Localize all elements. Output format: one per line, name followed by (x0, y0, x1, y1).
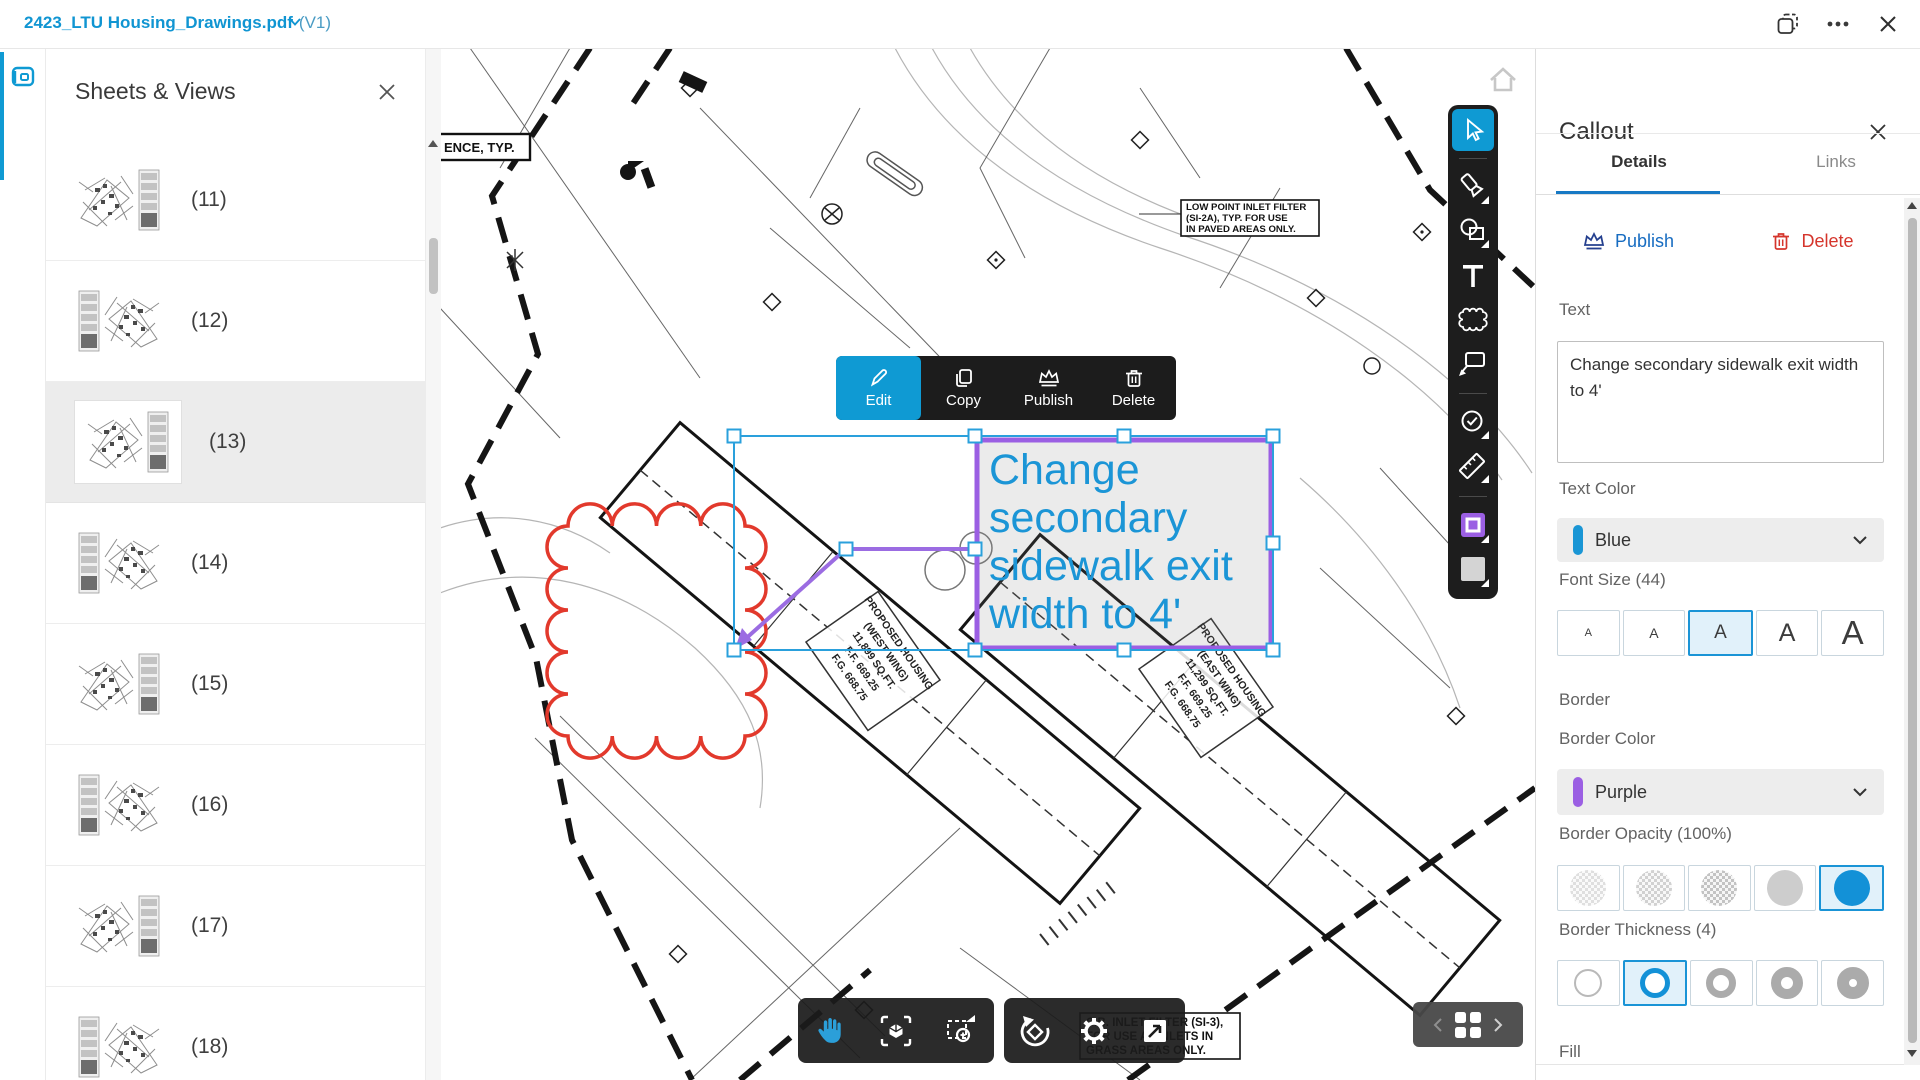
scroll-up-icon[interactable] (428, 140, 438, 147)
text-color-dropdown[interactable]: Blue (1557, 518, 1884, 562)
sheet-thumbnail (75, 401, 181, 483)
sheet-thumbnail (75, 773, 163, 837)
callout-text-input[interactable]: Change secondary sidewalk exit width to … (1557, 341, 1884, 463)
opacity-100-icon (1834, 870, 1870, 906)
crown-icon (1582, 230, 1606, 252)
border-color-value: Purple (1595, 782, 1852, 803)
version-chevron-down-icon[interactable] (288, 17, 302, 27)
opacity-option-4[interactable] (1754, 865, 1817, 911)
panel-delete-button[interactable]: Delete (1720, 226, 1904, 256)
zoom-window-button[interactable] (943, 1013, 979, 1049)
svg-text:IN PAVED AREAS ONLY.: IN PAVED AREAS ONLY. (1186, 224, 1296, 235)
navigation-toolbar (798, 998, 994, 1063)
opacity-75-icon (1701, 870, 1737, 906)
opacity-option-3[interactable] (1688, 865, 1751, 911)
font-size-option-1[interactable]: A (1557, 610, 1620, 656)
sheet-row-11[interactable]: (11) (45, 140, 425, 261)
marker-icon (1455, 170, 1491, 206)
sheet-navigator-button[interactable] (1413, 1002, 1523, 1047)
opacity-25-icon (1570, 870, 1606, 906)
shapes-tool-button[interactable] (1455, 214, 1491, 250)
sheet-label: (16) (191, 793, 228, 817)
panel-close-icon[interactable] (1868, 122, 1888, 142)
callout-icon (1455, 346, 1491, 382)
select-tool-button[interactable] (1452, 109, 1494, 151)
purple-swatch (1573, 777, 1583, 807)
sheets-panel-title: Sheets & Views (75, 78, 236, 105)
sheets-panel-icon[interactable] (10, 64, 36, 90)
viewer-settings-toolbar (1004, 998, 1185, 1063)
chevron-down-icon (1852, 535, 1868, 545)
revision-cloud-icon (1455, 302, 1491, 338)
font-size-option-4[interactable]: A (1756, 610, 1819, 656)
sheet-thumbnail (75, 652, 163, 716)
font-size-label: Font Size (44) (1559, 570, 1666, 590)
left-rail (0, 48, 46, 1080)
toolbar-divider (1459, 158, 1487, 159)
zoom-window-icon (943, 1013, 979, 1049)
sheet-row-13-selected[interactable]: (13) (45, 382, 425, 503)
sheet-label: (15) (191, 672, 228, 696)
border-color-dropdown[interactable]: Purple (1557, 769, 1884, 815)
panel-scrollbar-thumb[interactable] (1908, 218, 1917, 1043)
border-section-label: Border (1559, 690, 1610, 710)
text-color-label: Text Color (1559, 479, 1636, 499)
toolbar-divider (1459, 496, 1487, 497)
border-color-label: Border Color (1559, 729, 1655, 749)
crown-icon (1037, 367, 1061, 389)
annotation-context-toolbar: Edit Copy Publish (836, 356, 1176, 420)
drawing-canvas[interactable]: PROPOSED HOUSING (WEST WING) 11,899 SQ.F… (440, 48, 1535, 1080)
copy-label: Copy (946, 392, 981, 409)
font-size-option-3-selected[interactable]: A (1688, 610, 1753, 656)
opacity-option-2[interactable] (1623, 865, 1686, 911)
divider (1536, 1064, 1904, 1065)
svg-text:ENCE, TYP.: ENCE, TYP. (444, 140, 515, 155)
status-tool-button[interactable] (1455, 405, 1491, 441)
thickness-option-3[interactable] (1690, 960, 1753, 1006)
home-view-icon[interactable] (1486, 64, 1520, 96)
hand-pan-icon (814, 1014, 848, 1048)
trash-icon (1123, 367, 1145, 389)
font-size-option-2[interactable]: A (1623, 610, 1686, 656)
sheet-grid-icon (1453, 1010, 1483, 1040)
sheet-row-14[interactable]: (14) (45, 503, 425, 624)
sheet-thumbnail (75, 531, 163, 595)
callout-text-box[interactable] (977, 440, 1271, 648)
opacity-option-1[interactable] (1557, 865, 1620, 911)
blue-swatch (1573, 525, 1583, 555)
thickness-option-4[interactable] (1756, 960, 1819, 1006)
sheet-row-15[interactable]: (15) (45, 624, 425, 745)
publish-button[interactable]: Publish (1006, 356, 1091, 420)
panel-publish-label: Publish (1615, 231, 1674, 252)
text-icon (1455, 258, 1491, 294)
svg-text:LOW POINT INLET FILTER: LOW POINT INLET FILTER (1186, 202, 1306, 213)
document-title-text: 2423_LTU Housing_Drawings.pdf (24, 13, 293, 32)
sheets-panel: Sheets & Views (45, 48, 425, 1080)
site-plan-drawing: PROPOSED HOUSING (WEST WING) 11,899 SQ.F… (440, 48, 1535, 1080)
panel-actions: Publish Delete (1536, 226, 1904, 256)
sheet-row-18[interactable]: (18) (45, 987, 425, 1080)
top-bar: 2423_LTU Housing_Drawings.pdf(V1) (0, 0, 1920, 49)
document-version: (V1) (299, 13, 331, 32)
sheets-scrollbar-thumb[interactable] (429, 238, 438, 294)
text-color-value: Blue (1595, 530, 1852, 551)
delete-label: Delete (1112, 392, 1155, 409)
rotate-reset-icon (1016, 1013, 1052, 1049)
trash-icon (1770, 230, 1792, 252)
pencil-icon (868, 367, 890, 389)
sheet-thumbnail (75, 894, 163, 958)
svg-text:(SI-2A), TYP. FOR USE: (SI-2A), TYP. FOR USE (1186, 213, 1288, 224)
border-opacity-options (1557, 865, 1884, 911)
sheet-label: (11) (191, 188, 227, 212)
app-window: 2423_LTU Housing_Drawings.pdf(V1) (0, 0, 1920, 1080)
panel-publish-button[interactable]: Publish (1536, 226, 1720, 256)
document-title[interactable]: 2423_LTU Housing_Drawings.pdf(V1) (24, 13, 331, 33)
more-menu-icon[interactable] (1824, 10, 1852, 38)
sheet-row-12[interactable]: (12) (45, 261, 425, 382)
chevron-down-icon (1852, 787, 1868, 797)
sheets-panel-close-icon[interactable] (377, 82, 397, 102)
edit-label: Edit (866, 392, 892, 409)
panel-delete-label: Delete (1801, 231, 1853, 252)
low-point-inlet-note: LOW POINT INLET FILTER (SI-2A), TYP. FOR… (1139, 200, 1319, 236)
toolbar-divider (1459, 393, 1487, 394)
opacity-50-icon (1636, 870, 1672, 906)
sheet-thumbnail (75, 168, 163, 232)
check-circle-icon (1455, 405, 1491, 441)
expand-icon (1137, 1013, 1173, 1049)
next-sheet-icon[interactable] (1493, 1017, 1503, 1033)
gear-icon (1076, 1013, 1112, 1049)
delete-button[interactable]: Delete (1091, 356, 1176, 420)
west-wing-label: PROPOSED HOUSING (WEST WING) 11,899 SQ.F… (805, 590, 941, 732)
sheet-list: (11) (12) (13) (14) (15) (16) (45, 140, 425, 1080)
sheet-label: (12) (191, 309, 228, 333)
thickness-1-icon (1574, 969, 1602, 997)
ruler-icon (1455, 449, 1491, 485)
edit-button[interactable]: Edit (836, 356, 921, 420)
opacity-90-icon (1767, 870, 1803, 906)
thickness-12-icon (1771, 967, 1803, 999)
border-thickness-label: Border Thickness (4) (1559, 920, 1716, 940)
copy-icon (953, 367, 975, 389)
shapes-icon (1455, 214, 1491, 250)
sheet-label: (14) (191, 551, 228, 575)
sheet-row-17[interactable]: (17) (45, 866, 425, 987)
prev-sheet-icon[interactable] (1433, 1017, 1443, 1033)
sheet-thumbnail (75, 289, 163, 353)
cursor-icon (1460, 117, 1486, 143)
callout-annotation[interactable] (734, 436, 1273, 650)
fullscreen-button[interactable] (1137, 1013, 1173, 1049)
fill-color-swatch-icon (1455, 552, 1491, 588)
scroll-down-icon[interactable] (1907, 1050, 1917, 1057)
compare-icon[interactable] (1774, 10, 1802, 38)
callout-properties-panel: Callout Details Links Publish (1535, 48, 1920, 1080)
scroll-up-icon[interactable] (1907, 202, 1917, 209)
sheet-label: (18) (191, 1035, 228, 1059)
fit-view-icon (878, 1013, 914, 1049)
divider (1536, 194, 1920, 195)
fill-section-label: Fill (1559, 1042, 1581, 1062)
reset-orientation-button[interactable] (1016, 1013, 1052, 1049)
panel-scrollbar[interactable] (1904, 198, 1920, 1065)
callout-tool-button[interactable] (1455, 346, 1491, 382)
thickness-option-2-selected[interactable] (1623, 960, 1688, 1006)
close-window-icon[interactable] (1874, 10, 1902, 38)
border-thickness-options (1557, 960, 1884, 1006)
border-opacity-label: Border Opacity (100%) (1559, 824, 1732, 844)
sheet-label: (17) (191, 914, 228, 938)
thickness-4-icon (1640, 968, 1670, 998)
publish-label: Publish (1024, 392, 1073, 409)
sheets-scrollbar[interactable] (425, 48, 441, 1080)
thickness-option-1[interactable] (1557, 960, 1620, 1006)
opacity-option-5-selected[interactable] (1819, 865, 1884, 911)
text-field-label: Text (1559, 300, 1590, 320)
text-tool-button[interactable] (1455, 258, 1491, 294)
thickness-8-icon (1706, 968, 1736, 998)
divider (1536, 133, 1920, 134)
copy-button[interactable]: Copy (921, 356, 1006, 420)
tab-details[interactable]: Details (1594, 152, 1684, 172)
fence-note: ENCE, TYP. (440, 134, 530, 160)
sheet-label: (13) (209, 430, 246, 454)
settings-button[interactable] (1076, 1013, 1112, 1049)
sheet-row-16[interactable]: (16) (45, 745, 425, 866)
fit-view-button[interactable] (878, 1013, 914, 1049)
fill-color-swatch-button[interactable] (1455, 552, 1491, 588)
border-color-swatch-icon (1455, 508, 1491, 544)
measure-tool-button[interactable] (1455, 449, 1491, 485)
cloud-tool-button[interactable] (1455, 302, 1491, 338)
active-panel-accent (0, 52, 4, 180)
font-size-option-5[interactable]: A (1821, 610, 1884, 656)
draw-tool-button[interactable] (1455, 170, 1491, 206)
thickness-option-5[interactable] (1821, 960, 1884, 1006)
border-color-swatch-button[interactable] (1455, 508, 1491, 544)
sheet-thumbnail (75, 1015, 163, 1079)
thickness-16-icon (1837, 967, 1869, 999)
tab-links[interactable]: Links (1791, 152, 1881, 172)
pan-tool-button[interactable] (813, 1013, 849, 1049)
panel-title: Callout (1559, 118, 1634, 146)
annotation-toolbar (1448, 105, 1498, 599)
font-size-options: A A A A A (1557, 610, 1884, 656)
